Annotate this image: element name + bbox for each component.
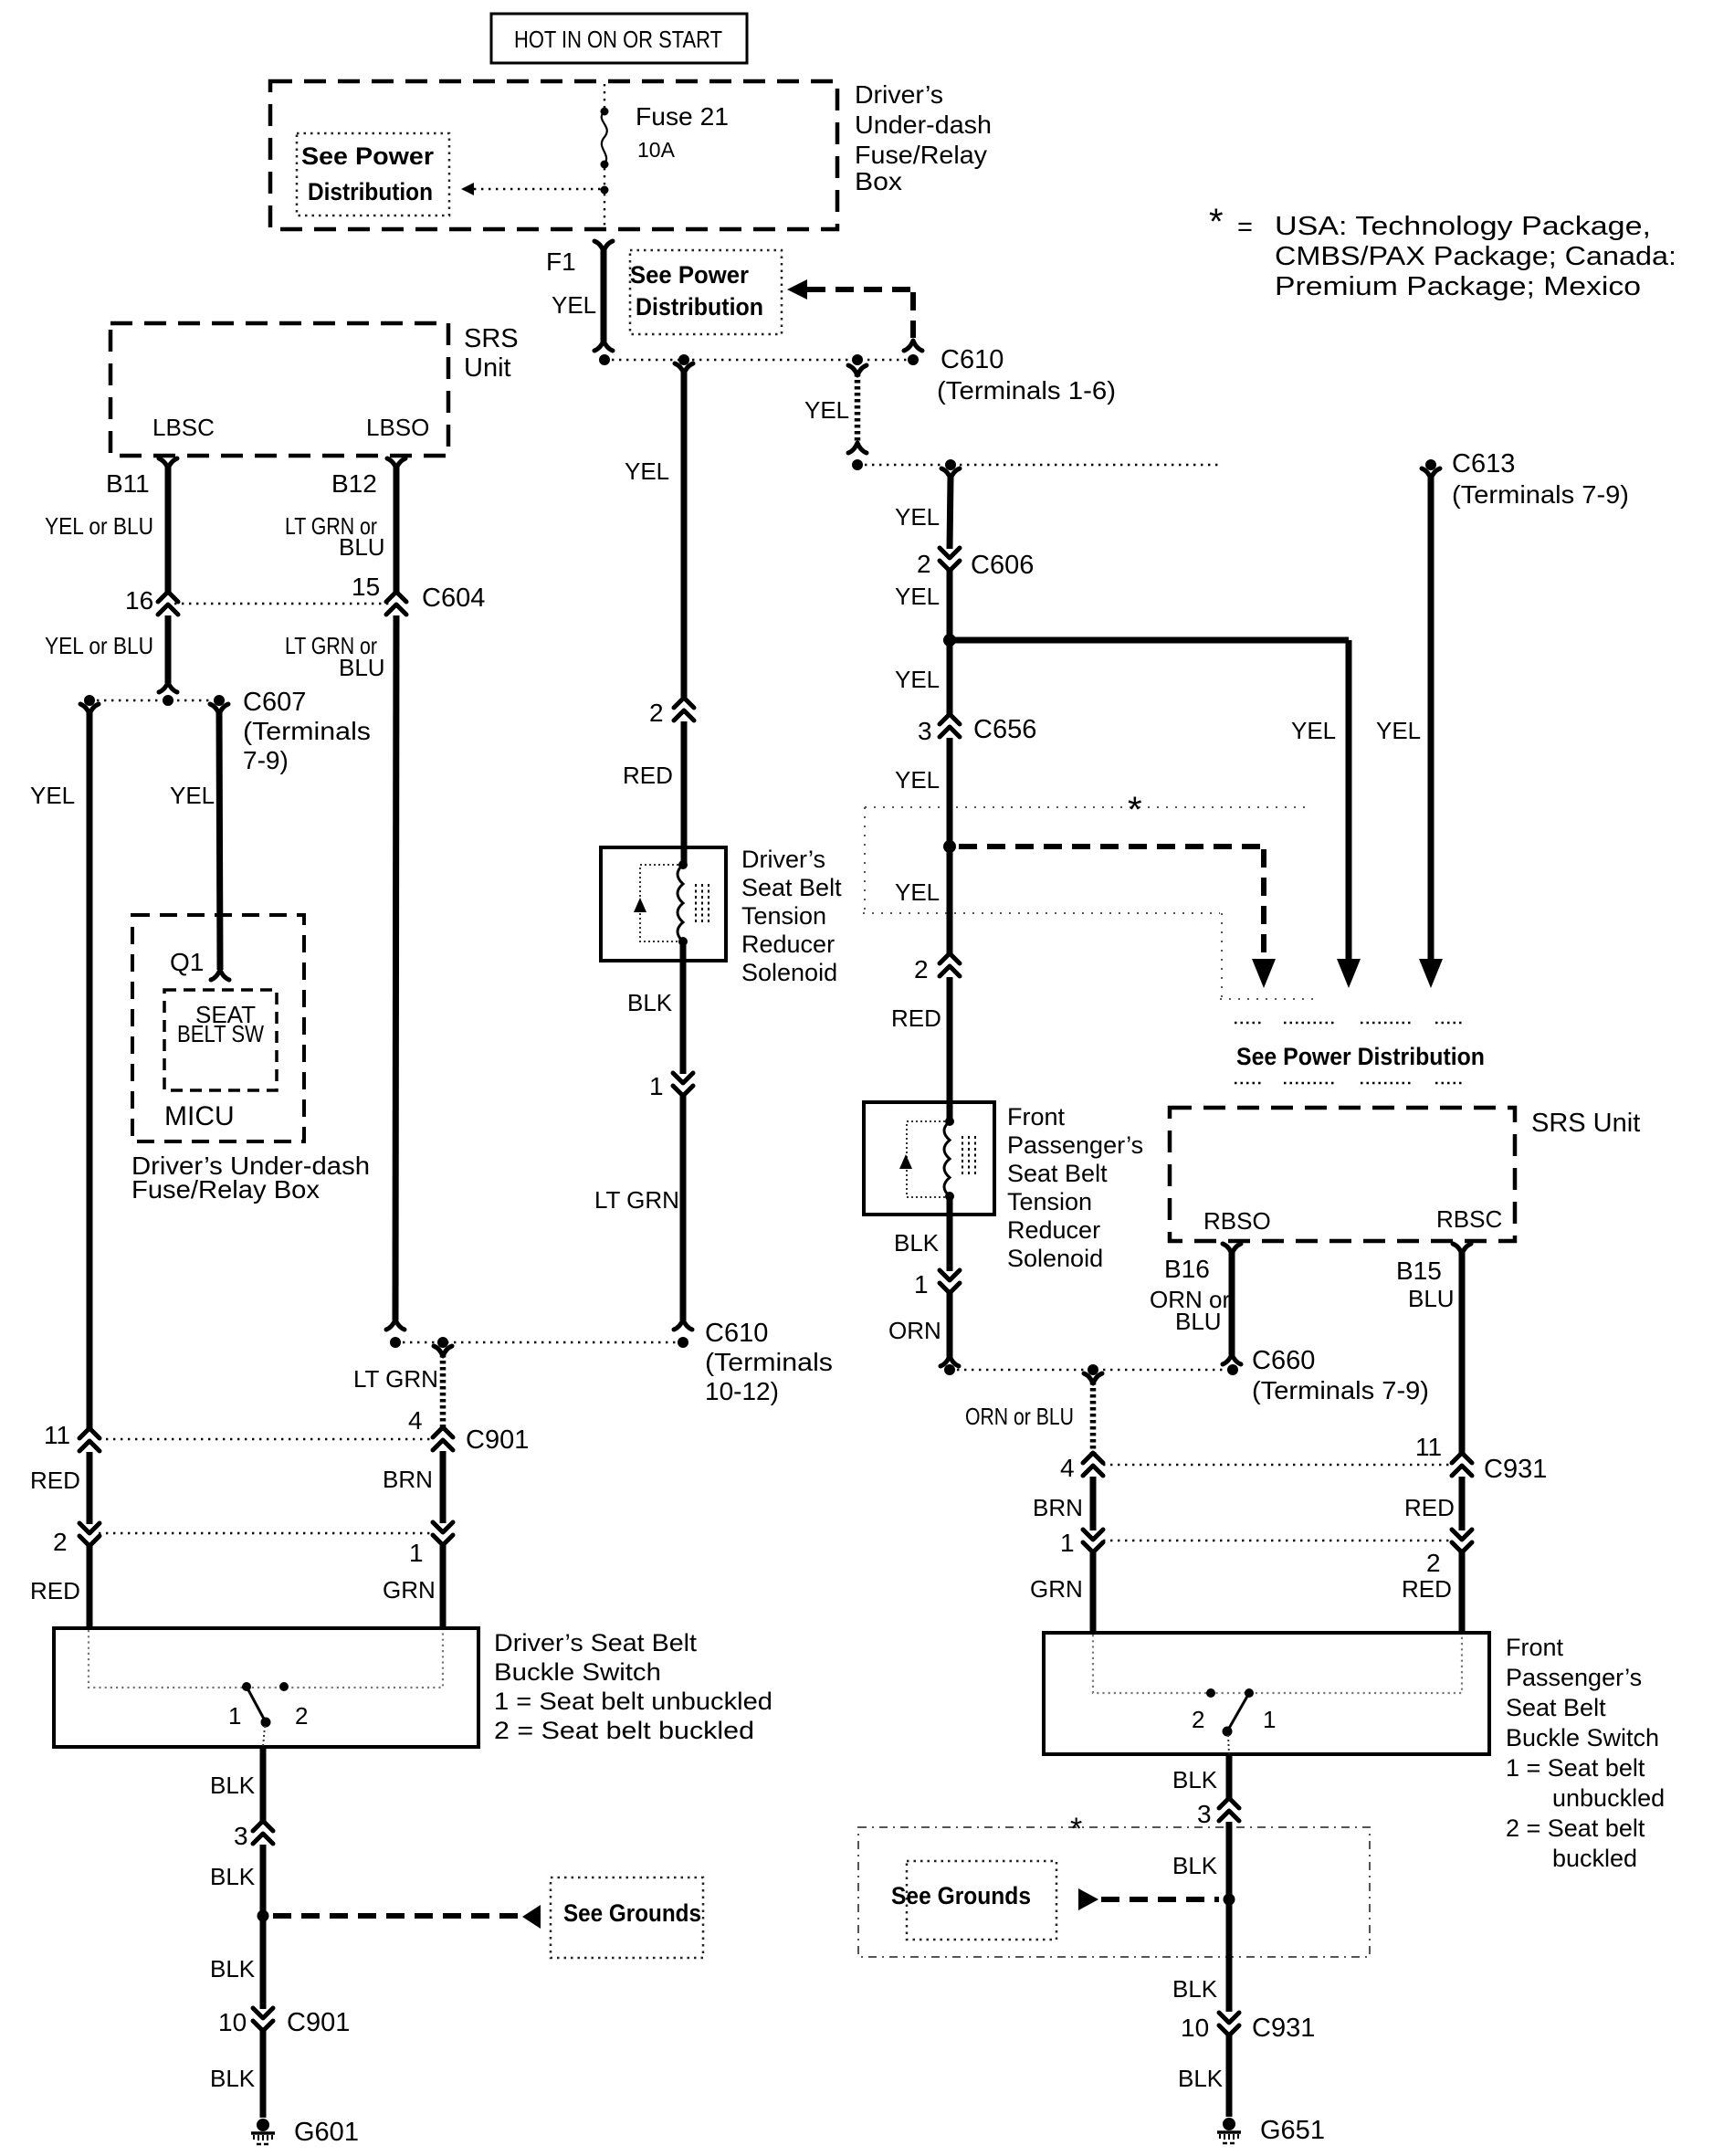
svg-text:YEL or BLU: YEL or BLU bbox=[45, 512, 153, 540]
svg-text:See Power: See Power bbox=[630, 261, 749, 289]
svg-text:Fuse 21: Fuse 21 bbox=[636, 102, 729, 131]
svg-text:4: 4 bbox=[408, 1406, 423, 1435]
svg-text:buckled: buckled bbox=[1552, 1845, 1637, 1872]
svg-text:GRN: GRN bbox=[383, 1576, 436, 1604]
svg-text:YEL: YEL bbox=[30, 782, 75, 809]
svg-text:SRS Unit: SRS Unit bbox=[1531, 1109, 1640, 1138]
svg-text:2: 2 bbox=[914, 955, 929, 983]
svg-text:LT GRN: LT GRN bbox=[353, 1365, 438, 1393]
svg-text:Q1: Q1 bbox=[170, 948, 204, 976]
svg-text:YEL: YEL bbox=[895, 766, 940, 794]
svg-text:(Terminals 7-9): (Terminals 7-9) bbox=[1452, 480, 1629, 509]
svg-text:B11: B11 bbox=[106, 469, 150, 498]
svg-text:RED: RED bbox=[30, 1467, 80, 1494]
svg-text:Driver’s: Driver’s bbox=[741, 846, 825, 873]
svg-text:See Power: See Power bbox=[301, 142, 435, 170]
svg-text:BLK: BLK bbox=[210, 2065, 256, 2092]
svg-text:Seat Belt: Seat Belt bbox=[1506, 1694, 1606, 1721]
svg-text:(Terminals: (Terminals bbox=[705, 1348, 833, 1376]
svg-text:Solenoid: Solenoid bbox=[741, 959, 837, 986]
svg-text:C607: C607 bbox=[243, 688, 306, 717]
svg-text:GRN: GRN bbox=[1030, 1575, 1083, 1603]
svg-text:Under-dash: Under-dash bbox=[855, 110, 992, 139]
svg-text:1: 1 bbox=[1060, 1529, 1075, 1557]
svg-text:YEL: YEL bbox=[552, 291, 596, 319]
svg-text:10: 10 bbox=[218, 2008, 247, 2036]
svg-text:10A: 10A bbox=[637, 138, 676, 162]
svg-text:See Power Distribution: See Power Distribution bbox=[1236, 1043, 1485, 1070]
svg-text:2: 2 bbox=[649, 699, 664, 727]
svg-text:2 = Seat belt buckled: 2 = Seat belt buckled bbox=[494, 1717, 754, 1744]
svg-text:YEL: YEL bbox=[895, 878, 940, 906]
svg-text:BLK: BLK bbox=[210, 1863, 256, 1890]
svg-text:1 = Seat belt unbuckled: 1 = Seat belt unbuckled bbox=[494, 1688, 772, 1715]
svg-text:B16: B16 bbox=[1164, 1255, 1210, 1283]
svg-text:G651: G651 bbox=[1260, 2116, 1325, 2145]
svg-text:*: * bbox=[1070, 1812, 1082, 1846]
svg-text:1: 1 bbox=[649, 1072, 664, 1100]
svg-text:YEL: YEL bbox=[804, 396, 849, 424]
svg-text:Tension: Tension bbox=[741, 902, 826, 930]
svg-text:C931: C931 bbox=[1484, 1455, 1547, 1484]
svg-text:HOT IN ON OR START: HOT IN ON OR START bbox=[514, 26, 722, 53]
svg-text:11: 11 bbox=[44, 1421, 70, 1449]
svg-text:BLU: BLU bbox=[1175, 1308, 1222, 1335]
svg-text:C610: C610 bbox=[941, 345, 1004, 374]
svg-text:10: 10 bbox=[1181, 2014, 1209, 2042]
svg-text:Buckle Switch: Buckle Switch bbox=[494, 1658, 661, 1686]
svg-text:C901: C901 bbox=[466, 1425, 529, 1455]
svg-text:C656: C656 bbox=[973, 715, 1036, 744]
svg-text:7-9): 7-9) bbox=[243, 746, 289, 774]
svg-text:RED: RED bbox=[1402, 1575, 1452, 1603]
svg-text:YEL: YEL bbox=[895, 666, 940, 693]
svg-text:11: 11 bbox=[1415, 1433, 1442, 1461]
svg-text:BRN: BRN bbox=[1033, 1494, 1083, 1521]
svg-text:CMBS/PAX Package; Canada:: CMBS/PAX Package; Canada: bbox=[1275, 242, 1676, 271]
svg-text:Seat Belt: Seat Belt bbox=[1007, 1160, 1108, 1187]
svg-text:RBSC: RBSC bbox=[1436, 1205, 1502, 1233]
svg-text:LBSC: LBSC bbox=[152, 414, 215, 441]
svg-text:RED: RED bbox=[891, 1004, 941, 1032]
svg-text:C604: C604 bbox=[422, 584, 485, 613]
svg-text:C606: C606 bbox=[971, 551, 1034, 580]
svg-text:SRS: SRS bbox=[464, 324, 519, 353]
svg-text:RED: RED bbox=[30, 1577, 80, 1604]
svg-text:Box: Box bbox=[855, 167, 902, 195]
svg-text:BLK: BLK bbox=[894, 1229, 940, 1257]
svg-text:C660: C660 bbox=[1252, 1346, 1315, 1375]
svg-text:LBSO: LBSO bbox=[366, 414, 429, 441]
svg-text:Passenger’s: Passenger’s bbox=[1007, 1131, 1143, 1159]
svg-text:Tension: Tension bbox=[1007, 1188, 1092, 1215]
svg-text:BRN: BRN bbox=[383, 1466, 433, 1493]
svg-text:2: 2 bbox=[295, 1702, 308, 1730]
svg-text:RBSO: RBSO bbox=[1203, 1207, 1271, 1235]
svg-text:3: 3 bbox=[918, 717, 932, 745]
svg-text:2: 2 bbox=[1426, 1549, 1441, 1577]
svg-text:Premium Package; Mexico: Premium Package; Mexico bbox=[1275, 272, 1641, 301]
svg-text:Reducer: Reducer bbox=[741, 931, 835, 958]
svg-text:Front: Front bbox=[1506, 1634, 1564, 1661]
svg-text:YEL: YEL bbox=[170, 782, 215, 809]
svg-text:Driver’s Seat Belt: Driver’s Seat Belt bbox=[494, 1629, 698, 1656]
svg-text:See Grounds: See Grounds bbox=[891, 1882, 1031, 1909]
svg-text:YEL: YEL bbox=[625, 457, 669, 485]
svg-text:(Terminals 7-9): (Terminals 7-9) bbox=[1252, 1376, 1429, 1404]
svg-text:BLU: BLU bbox=[339, 654, 385, 681]
svg-text:ORN or BLU: ORN or BLU bbox=[965, 1403, 1074, 1430]
svg-text:3: 3 bbox=[1197, 1800, 1212, 1828]
svg-text:C931: C931 bbox=[1252, 2014, 1315, 2043]
svg-text:BLK: BLK bbox=[1172, 1852, 1218, 1879]
svg-text:1: 1 bbox=[1263, 1706, 1276, 1733]
svg-text:YEL or BLU: YEL or BLU bbox=[45, 632, 153, 659]
svg-text:ORN: ORN bbox=[888, 1317, 941, 1344]
svg-text:Front: Front bbox=[1007, 1103, 1066, 1131]
svg-text:Passenger’s: Passenger’s bbox=[1506, 1664, 1642, 1691]
svg-text:2: 2 bbox=[1192, 1706, 1204, 1733]
svg-text:(Terminals: (Terminals bbox=[243, 717, 371, 745]
svg-text:F1: F1 bbox=[546, 247, 576, 276]
svg-text:G601: G601 bbox=[294, 2118, 359, 2147]
svg-text:=: = bbox=[1237, 213, 1253, 242]
svg-text:BLK: BLK bbox=[1178, 2065, 1224, 2092]
svg-text:RED: RED bbox=[623, 762, 673, 789]
svg-text:C901: C901 bbox=[287, 2008, 350, 2037]
svg-text:YEL: YEL bbox=[895, 503, 940, 531]
svg-text:MICU: MICU bbox=[164, 1101, 235, 1131]
svg-text:C610: C610 bbox=[705, 1319, 768, 1348]
svg-text:Driver’s: Driver’s bbox=[855, 80, 943, 109]
svg-text:Fuse/Relay Box: Fuse/Relay Box bbox=[131, 1175, 320, 1204]
svg-text:BLK: BLK bbox=[627, 989, 673, 1016]
svg-text:B15: B15 bbox=[1396, 1257, 1442, 1285]
svg-text:BLU: BLU bbox=[1408, 1285, 1455, 1312]
svg-text:Fuse/Relay: Fuse/Relay bbox=[855, 141, 987, 169]
svg-text:*: * bbox=[1209, 202, 1224, 242]
svg-text:USA: Technology Package,: USA: Technology Package, bbox=[1275, 212, 1651, 241]
svg-text:Unit: Unit bbox=[464, 353, 511, 383]
svg-text:BLU: BLU bbox=[339, 533, 385, 561]
svg-text:Buckle Switch: Buckle Switch bbox=[1506, 1724, 1659, 1751]
svg-text:1 = Seat belt: 1 = Seat belt bbox=[1506, 1754, 1645, 1782]
svg-text:BLK: BLK bbox=[210, 1955, 256, 1982]
svg-text:BLK: BLK bbox=[210, 1772, 256, 1799]
svg-text:16: 16 bbox=[125, 586, 153, 615]
svg-text:1: 1 bbox=[409, 1539, 424, 1567]
svg-text:15: 15 bbox=[352, 573, 380, 601]
svg-text:*: * bbox=[1128, 790, 1142, 830]
svg-text:YEL: YEL bbox=[1291, 717, 1336, 744]
svg-text:3: 3 bbox=[234, 1822, 248, 1850]
svg-text:C613: C613 bbox=[1452, 449, 1515, 479]
svg-text:10-12): 10-12) bbox=[705, 1377, 779, 1405]
svg-text:BLK: BLK bbox=[1172, 1766, 1218, 1793]
svg-text:Seat Belt: Seat Belt bbox=[741, 874, 842, 901]
svg-text:B12: B12 bbox=[331, 469, 377, 498]
svg-text:Distribution: Distribution bbox=[308, 178, 433, 205]
svg-text:LT GRN: LT GRN bbox=[594, 1186, 679, 1214]
svg-text:2: 2 bbox=[917, 550, 931, 578]
svg-text:(Terminals 1-6): (Terminals 1-6) bbox=[937, 376, 1116, 405]
svg-text:RED: RED bbox=[1404, 1494, 1455, 1521]
svg-text:See Grounds: See Grounds bbox=[563, 1899, 701, 1927]
svg-text:BELT SW: BELT SW bbox=[177, 1020, 264, 1047]
svg-text:2: 2 bbox=[53, 1528, 68, 1556]
svg-text:YEL: YEL bbox=[895, 583, 940, 610]
svg-text:Distribution: Distribution bbox=[636, 293, 763, 321]
svg-text:2 = Seat belt: 2 = Seat belt bbox=[1506, 1814, 1645, 1842]
svg-text:1: 1 bbox=[914, 1270, 929, 1299]
svg-text:Reducer: Reducer bbox=[1007, 1216, 1100, 1244]
svg-text:YEL: YEL bbox=[1376, 717, 1421, 744]
svg-text:unbuckled: unbuckled bbox=[1552, 1784, 1665, 1812]
svg-text:1: 1 bbox=[228, 1702, 241, 1730]
svg-text:BLK: BLK bbox=[1172, 1975, 1218, 2003]
svg-text:4: 4 bbox=[1060, 1454, 1075, 1482]
svg-text:Solenoid: Solenoid bbox=[1007, 1245, 1103, 1272]
